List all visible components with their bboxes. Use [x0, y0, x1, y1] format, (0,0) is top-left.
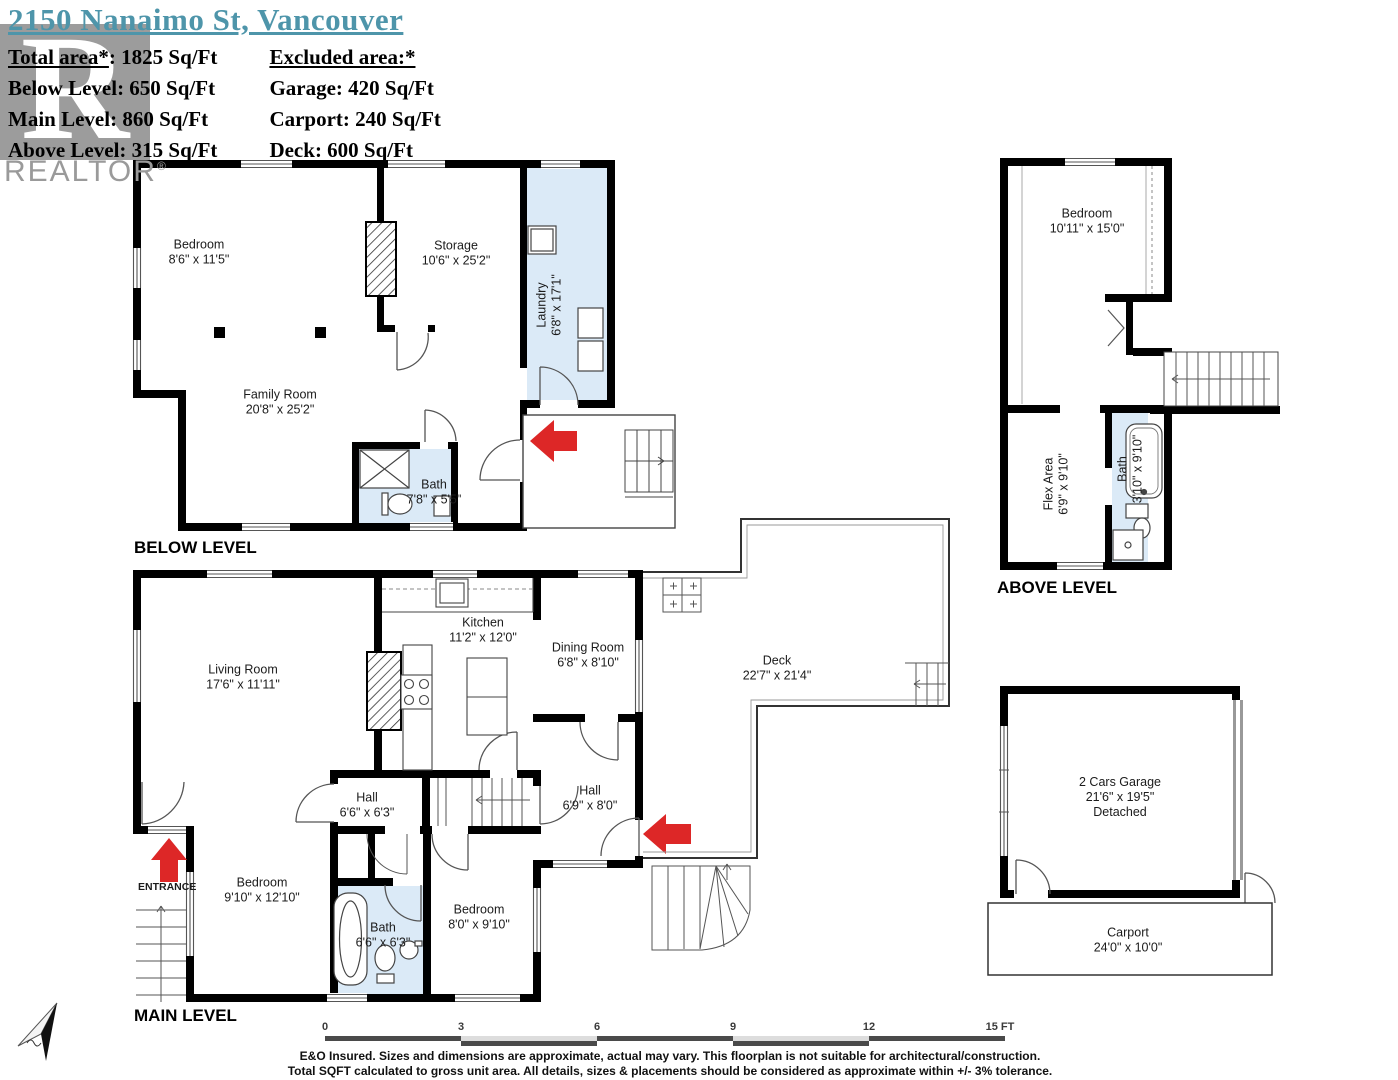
room-label-bedroom-main-2: Bedroom8'0" x 9'10": [448, 902, 510, 932]
room-label-bedroom-below: Bedroom8'6" x 11'5": [169, 237, 230, 267]
chimney-hatch-main: [367, 652, 401, 730]
scale-tick-0: 0: [322, 1021, 328, 1033]
entrance-steps: [136, 906, 186, 1002]
deck-curved-stairs: [652, 864, 750, 950]
page-title: 2150 Nanaimo St, Vancouver: [8, 2, 441, 38]
below-level-title: BELOW LEVEL: [134, 538, 257, 558]
room-label-flex-area: Flex Area6'9" x 9'10": [1041, 453, 1071, 515]
room-label-carport: Carport24'0" x 10'0": [1094, 925, 1163, 955]
room-label-dining-room: Dining Room6'8" x 8'10": [552, 640, 624, 670]
garage-door: [1233, 700, 1243, 880]
excluded-areas: Excluded area:* Garage: 420 Sq/Ft Carpor…: [269, 42, 441, 166]
scale-tick-6: 6: [594, 1021, 600, 1033]
scale-bar: [325, 1036, 1005, 1046]
room-label-bath-above: Bath3'10" x 9'10": [1115, 435, 1145, 504]
room-label-garage: 2 Cars Garage21'6" x 19'5"Detached: [1079, 775, 1161, 819]
main-level-plan: [132, 519, 949, 1003]
room-label-bath-main: Bath6'6" x 6'3": [356, 920, 411, 950]
main-level-area-row: Main Level: 860 Sq/Ft: [8, 104, 217, 135]
room-label-bedroom-main-1: Bedroom9'10" x 12'10": [224, 875, 300, 905]
deck-outline: [643, 519, 949, 950]
header: 2150 Nanaimo St, Vancouver Total area*: …: [8, 2, 441, 166]
bifold-door: [1108, 310, 1124, 346]
above-level-area-row: Above Level: 315 Sq/Ft: [8, 135, 217, 166]
kitchen-fixtures: [382, 578, 533, 770]
main-level-title: MAIN LEVEL: [134, 1006, 237, 1026]
carport-area-row: Carport: 240 Sq/Ft: [269, 104, 441, 135]
room-label-laundry: Laundry6'8" x 17'1": [534, 274, 564, 336]
scale-tick-15ft: 15 FT: [986, 1021, 1015, 1033]
room-label-living-room: Living Room17'6" x 11'11": [206, 662, 280, 692]
scale-tick-3: 3: [458, 1021, 464, 1033]
room-label-storage: Storage10'6" x 25'2": [422, 238, 491, 268]
garage-area-row: Garage: 420 Sq/Ft: [269, 73, 441, 104]
room-label-hall-1: Hall6'6" x 6'3": [340, 790, 395, 820]
below-level-plan: [132, 159, 675, 532]
scale-tick-9: 9: [730, 1021, 736, 1033]
stairs-main: [438, 778, 530, 826]
room-label-hall-2: Hall6'9" x 8'0": [563, 783, 618, 813]
garage-window: [999, 726, 1009, 856]
room-label-bath-below: Bath7'8" x 5'5": [407, 477, 462, 507]
total-area-row: Total area*: 1825 Sq/Ft: [8, 42, 217, 73]
floorplan-canvas: R REALTOR® 2150 Nanaimo St, Vancouver To…: [0, 0, 1398, 1080]
disclaimer-line-1: E&O Insured. Sizes and dimensions are ap…: [250, 1049, 1090, 1063]
entry-arrow-main: [643, 814, 691, 854]
excluded-heading: Excluded area:*: [269, 42, 441, 73]
below-level-area-row: Below Level: 650 Sq/Ft: [8, 73, 217, 104]
entrance-label: ENTRANCE: [138, 881, 196, 893]
stairs-above: [1164, 352, 1278, 406]
scale-tick-12: 12: [863, 1021, 875, 1033]
disclaimer-line-2: Total SQFT calculated to gross unit area…: [250, 1064, 1090, 1078]
room-label-deck: Deck22'7" x 21'4": [743, 653, 812, 683]
deck-table: [663, 578, 701, 612]
deck-area-row: Deck: 600 Sq/Ft: [269, 135, 441, 166]
room-label-bedroom-above: Bedroom10'11" x 15'0": [1050, 206, 1125, 236]
room-label-family-room: Family Room20'8" x 25'2": [243, 387, 317, 417]
included-areas: Total area*: 1825 Sq/Ft Below Level: 650…: [8, 42, 217, 166]
bedroom-ceiling-lines: [1022, 166, 1152, 404]
above-level-title: ABOVE LEVEL: [997, 578, 1117, 598]
room-label-kitchen: Kitchen11'2" x 12'0": [449, 615, 517, 645]
north-arrow-icon: [18, 1003, 57, 1061]
entrance-arrow: [151, 838, 187, 882]
chimney-hatch: [366, 222, 396, 296]
